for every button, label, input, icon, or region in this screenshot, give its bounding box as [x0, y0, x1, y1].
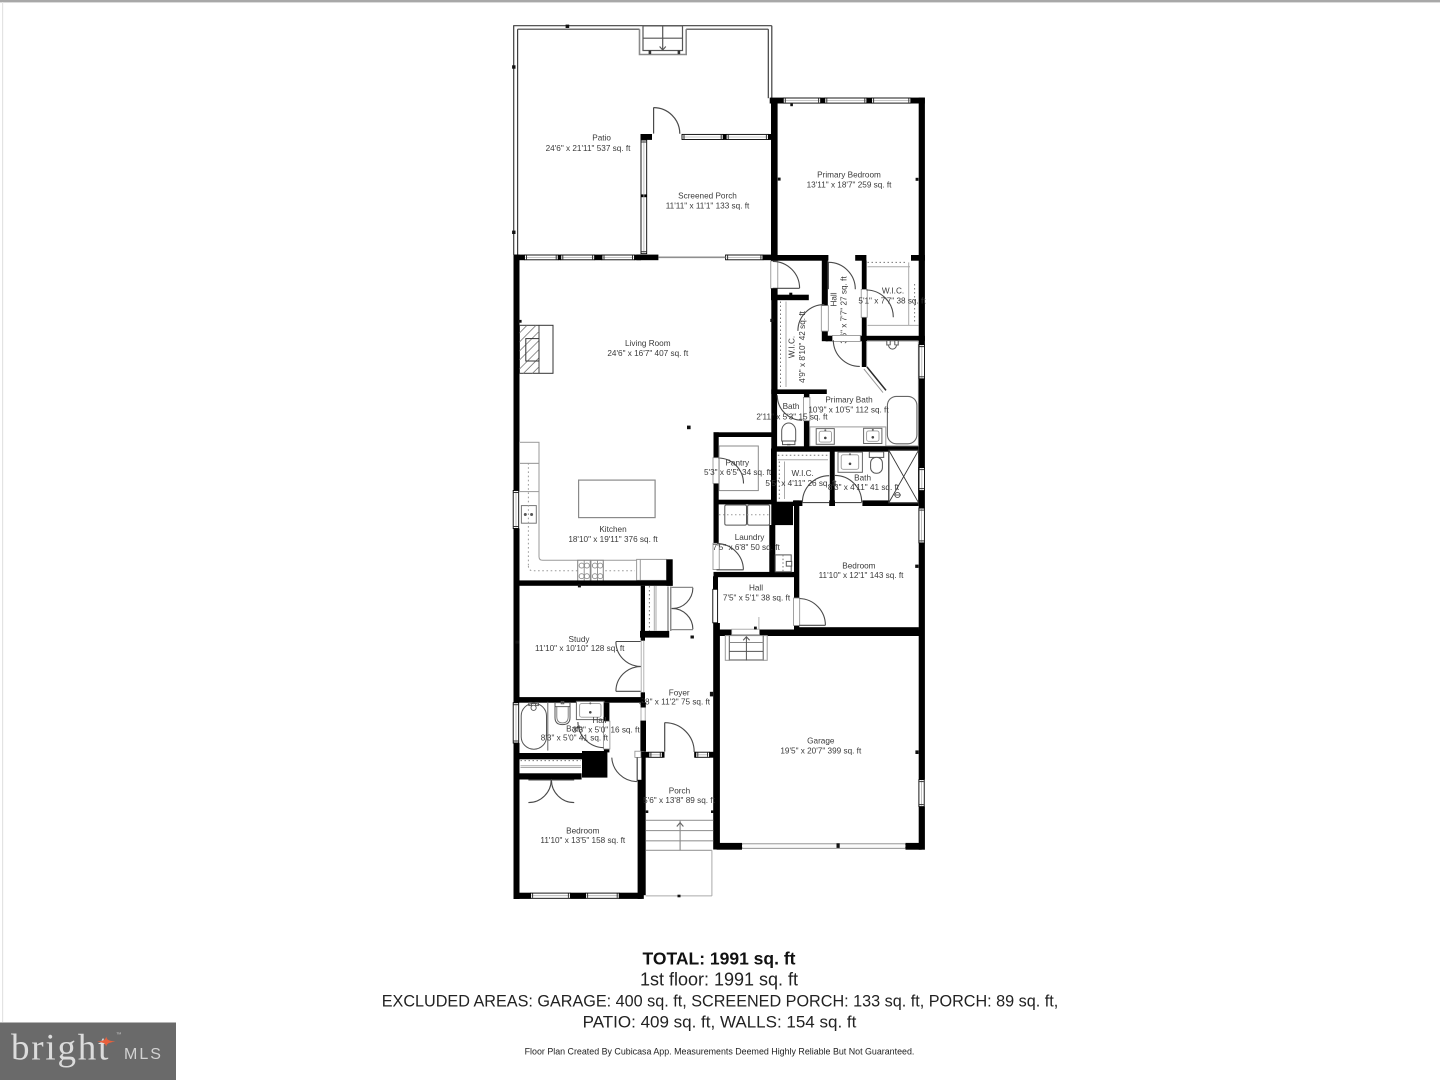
svg-text:bright: bright	[11, 1028, 110, 1069]
svg-text:Screened Porch: Screened Porch	[678, 191, 737, 200]
svg-text:Pantry: Pantry	[725, 458, 750, 467]
svg-text:Garage: Garage	[807, 736, 835, 745]
svg-text:5'6" x 13'8" 89 sq. ft: 5'6" x 13'8" 89 sq. ft	[643, 796, 715, 805]
svg-text:Primary Bedroom: Primary Bedroom	[817, 170, 881, 179]
svg-text:Hall: Hall	[830, 292, 839, 306]
svg-text:Bedroom: Bedroom	[566, 826, 599, 835]
svg-text:5'8" x 11'2" 75 sq. ft: 5'8" x 11'2" 75 sq. ft	[639, 697, 711, 706]
svg-text:5'5" x 4'11" 26 sq. ft: 5'5" x 4'11" 26 sq. ft	[765, 479, 837, 488]
svg-text:24'6" x 21'11" 537 sq. ft: 24'6" x 21'11" 537 sq. ft	[546, 144, 632, 153]
svg-text:5'1" x 7'7" 38 sq. ft: 5'1" x 7'7" 38 sq. ft	[858, 296, 926, 305]
svg-text:Hall: Hall	[592, 716, 606, 725]
svg-text:Bath: Bath	[783, 402, 800, 411]
svg-text:Primary Bath: Primary Bath	[825, 396, 873, 405]
svg-text:W.I.C.: W.I.C.	[882, 287, 904, 296]
svg-text:7'5" x 5'1" 38 sq. ft: 7'5" x 5'1" 38 sq. ft	[723, 594, 791, 603]
svg-text:18'10" x 19'11" 376 sq. ft: 18'10" x 19'11" 376 sq. ft	[568, 535, 658, 544]
svg-text:W.I.C.: W.I.C.	[792, 469, 814, 478]
svg-text:PATIO: 409 sq. ft, WALLS: 154: PATIO: 409 sq. ft, WALLS: 154 sq. ft	[583, 1012, 857, 1031]
svg-text:11'10" x 10'10" 128 sq. ft: 11'10" x 10'10" 128 sq. ft	[535, 644, 625, 653]
svg-text:Hall: Hall	[749, 584, 763, 593]
svg-text:TOTAL: 1991 sq. ft: TOTAL: 1991 sq. ft	[643, 949, 796, 969]
svg-text:Laundry: Laundry	[735, 533, 765, 542]
svg-text:1st floor: 1991 sq. ft: 1st floor: 1991 sq. ft	[640, 970, 798, 990]
svg-text:MLS: MLS	[124, 1046, 163, 1063]
svg-text:Bath: Bath	[854, 473, 871, 482]
svg-text:11'10" x 12'1" 143 sq. ft: 11'10" x 12'1" 143 sq. ft	[819, 571, 905, 580]
svg-text:Living Room: Living Room	[625, 339, 671, 348]
svg-text:Porch: Porch	[669, 786, 691, 795]
svg-text:Foyer: Foyer	[669, 688, 690, 697]
svg-text:8'3" x 5'0" 41 sq. ft: 8'3" x 5'0" 41 sq. ft	[541, 734, 609, 743]
svg-text:11'10" x 13'5" 158 sq. ft: 11'10" x 13'5" 158 sq. ft	[540, 836, 626, 845]
svg-text:W.I.C.: W.I.C.	[787, 336, 796, 358]
svg-text:3'6" x 7'7" 27 sq. ft: 3'6" x 7'7" 27 sq. ft	[839, 276, 848, 344]
svg-text:24'6" x 16'7" 407 sq. ft: 24'6" x 16'7" 407 sq. ft	[607, 349, 689, 358]
svg-text:13'11" x 18'7" 259 sq. ft: 13'11" x 18'7" 259 sq. ft	[807, 180, 893, 189]
svg-text:Kitchen: Kitchen	[599, 525, 627, 534]
svg-text:8'3" x 4'11" 41 sq. ft: 8'3" x 4'11" 41 sq. ft	[828, 483, 900, 492]
svg-text:Study: Study	[569, 635, 591, 644]
svg-text:5'3" x 6'5" 34 sq. ft: 5'3" x 6'5" 34 sq. ft	[704, 468, 772, 477]
svg-text:Bedroom: Bedroom	[842, 561, 875, 570]
svg-text:EXCLUDED AREAS: GARAGE: 400 sq: EXCLUDED AREAS: GARAGE: 400 sq. ft, SCRE…	[382, 993, 1059, 1011]
svg-text:10'9" x 10'5" 112 sq. ft: 10'9" x 10'5" 112 sq. ft	[808, 406, 889, 415]
svg-text:4'9" x 8'10" 42 sq. ft: 4'9" x 8'10" 42 sq. ft	[798, 310, 807, 382]
svg-text:19'5" x 20'7" 399 sq. ft: 19'5" x 20'7" 399 sq. ft	[780, 746, 862, 755]
svg-text:Patio: Patio	[592, 134, 611, 143]
svg-text:7'5" x 6'8" 50 sq. ft: 7'5" x 6'8" 50 sq. ft	[713, 543, 781, 552]
svg-text:11'11" x 11'1" 133 sq. ft: 11'11" x 11'1" 133 sq. ft	[666, 201, 750, 210]
svg-text:Floor Plan Created By Cubicasa: Floor Plan Created By Cubicasa App. Meas…	[525, 1046, 915, 1056]
svg-text:™: ™	[116, 1032, 122, 1038]
svg-text:3'3" x 5'0" 16 sq. ft: 3'3" x 5'0" 16 sq. ft	[572, 726, 640, 735]
